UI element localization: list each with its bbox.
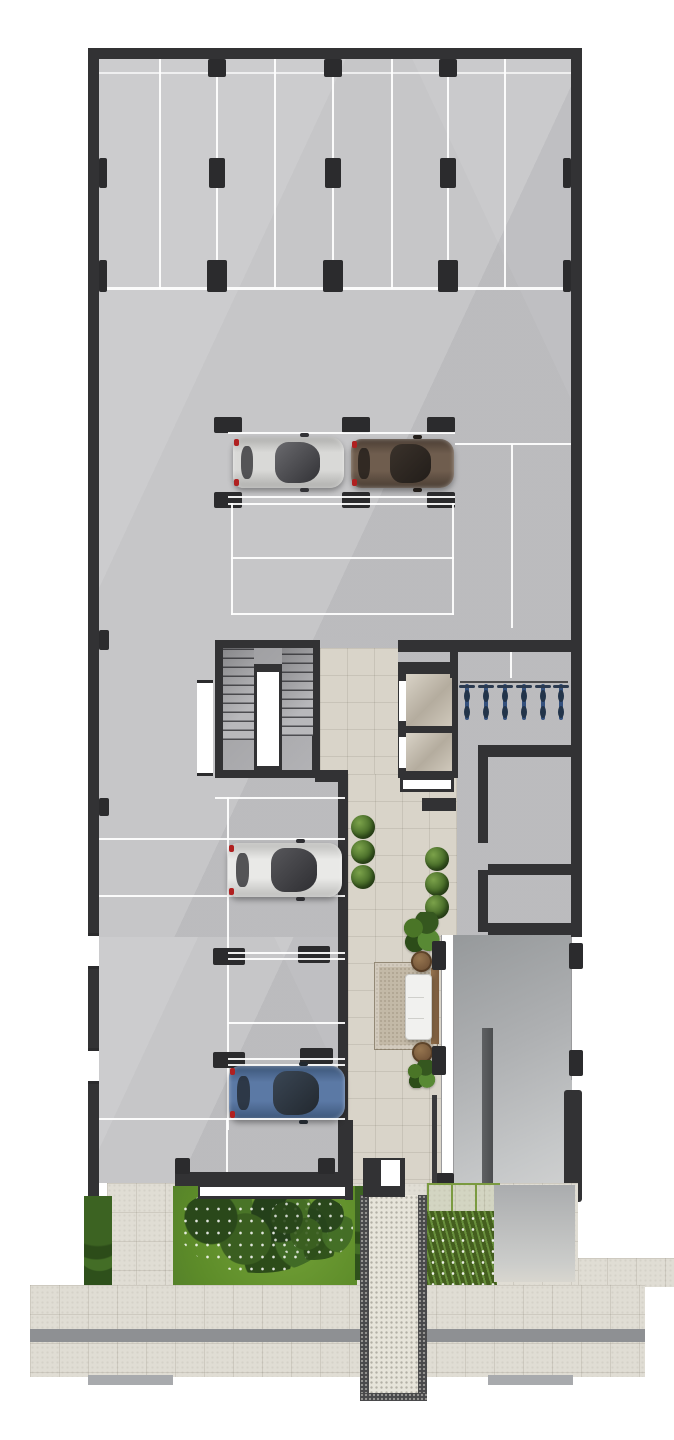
stall-line — [231, 557, 454, 559]
side-table — [411, 951, 432, 972]
walkway-border — [360, 1195, 369, 1397]
column — [439, 59, 457, 77]
stall-line — [99, 1118, 345, 1120]
bike-room-wall — [450, 652, 458, 678]
bike-room-line — [510, 652, 512, 678]
stall-line — [452, 503, 454, 615]
column — [342, 492, 370, 508]
column — [427, 492, 455, 508]
walkway-end — [360, 1393, 427, 1401]
column — [207, 260, 227, 292]
car-mirror — [300, 488, 309, 492]
storage-wall — [488, 864, 572, 875]
wall-pilaster — [99, 260, 107, 292]
stair-flight — [223, 648, 254, 740]
car-blue-hatchback — [229, 1066, 345, 1120]
driveway-ramp — [454, 935, 572, 1185]
planter-bush — [351, 840, 375, 864]
stall-line — [228, 496, 455, 498]
stair-void — [257, 672, 279, 766]
glass-wall-post — [432, 1046, 446, 1075]
entrance-pier — [318, 1158, 335, 1174]
elevator-lobby-glass — [403, 780, 451, 789]
car-taillight — [234, 479, 239, 486]
stall-line — [228, 503, 455, 505]
stall-line — [228, 1058, 345, 1060]
car-taillight — [234, 439, 239, 446]
car-mirror — [299, 1120, 308, 1124]
bicycle — [484, 684, 488, 720]
floor-plan — [0, 0, 674, 1440]
car-taillight — [352, 441, 357, 448]
bicycle — [541, 684, 545, 720]
wall-right — [571, 48, 582, 937]
column — [209, 158, 225, 188]
stall-line — [215, 797, 345, 799]
car-rear-window — [237, 1076, 250, 1111]
stall-line — [274, 59, 276, 289]
car-taillight — [230, 1068, 235, 1075]
stall-line — [228, 1022, 345, 1024]
car-taillight — [229, 845, 234, 852]
wall-pilaster — [563, 260, 571, 292]
bike-rail — [460, 681, 568, 683]
bicycle — [559, 684, 563, 720]
car-mirror — [296, 839, 305, 843]
glass-wall-post — [432, 941, 446, 970]
stall-line — [99, 838, 345, 840]
lobby-divider — [432, 1095, 437, 1185]
entrance-pier — [175, 1158, 190, 1174]
stair-flight — [282, 648, 313, 736]
walkway-path — [369, 1195, 418, 1393]
stall-line — [228, 432, 455, 434]
front-yard-pavers — [578, 1258, 674, 1287]
planter-bush — [425, 847, 449, 871]
entrance-wall — [175, 1172, 353, 1186]
stall-line — [231, 503, 233, 615]
glass-wall-post — [569, 1050, 583, 1076]
car-rear-window — [358, 448, 369, 479]
storage-wall — [478, 745, 578, 757]
car-mirror — [300, 433, 309, 437]
car-mirror — [299, 1062, 308, 1066]
stall-line — [455, 443, 571, 445]
elevator-door-1 — [399, 681, 406, 721]
car-taillight — [352, 479, 357, 486]
left-wall-vent — [88, 1048, 99, 1084]
car-taillight — [230, 1111, 235, 1118]
curb-tab — [488, 1375, 573, 1385]
column — [208, 59, 226, 77]
lobby-sofa — [405, 974, 432, 1040]
car-roof — [273, 1071, 319, 1114]
garage-floor — [99, 59, 571, 937]
car-mirror — [413, 435, 422, 439]
entrance-glass-band — [200, 1187, 351, 1196]
stall-line — [391, 59, 393, 289]
entrance-post — [345, 1120, 353, 1200]
stair-side-window — [197, 680, 213, 776]
wall-pilaster — [99, 158, 107, 188]
car-roof — [275, 442, 319, 483]
tactile-strip — [30, 1329, 645, 1342]
car-roof — [390, 444, 431, 483]
car-taillight — [229, 888, 234, 895]
wall-left — [88, 48, 99, 1196]
storage-wall — [478, 870, 488, 932]
storage-wall — [488, 923, 578, 935]
bicycle — [465, 684, 469, 720]
elevator-cab-2 — [406, 733, 452, 771]
stall-line — [511, 444, 513, 628]
column — [438, 260, 458, 292]
column — [324, 59, 342, 77]
driveway-outdoor — [494, 1185, 575, 1282]
stall-line — [228, 958, 345, 960]
planter-bush — [351, 815, 375, 839]
car-white-suv — [228, 843, 342, 897]
column — [214, 417, 242, 433]
planter-bush — [351, 865, 375, 889]
column — [440, 158, 456, 188]
column — [427, 417, 455, 433]
stall-line — [228, 952, 345, 954]
walkway-border — [418, 1195, 427, 1397]
wall-pilaster — [99, 798, 109, 816]
car-mirror — [413, 488, 422, 492]
column — [325, 158, 341, 188]
stall-line — [231, 613, 454, 615]
planter-bush — [425, 872, 449, 896]
wall-pilaster — [563, 158, 571, 188]
bicycle — [503, 684, 507, 720]
glass-wall-post — [569, 943, 583, 969]
stall-line — [226, 1118, 228, 1180]
console-table — [431, 968, 439, 1044]
wall-stub — [422, 798, 456, 811]
car-rear-window — [241, 446, 253, 479]
stall-line — [504, 59, 506, 289]
storage-wall — [478, 757, 488, 843]
core-wall — [398, 640, 572, 652]
car-rear-window — [236, 853, 249, 888]
column — [298, 946, 330, 963]
stall-line — [159, 59, 161, 289]
left-wall-vent — [88, 933, 99, 969]
car-roof — [271, 848, 317, 891]
corridor-pavers — [320, 648, 398, 774]
planter-grid — [427, 1183, 500, 1213]
elevator-cab-1 — [406, 674, 452, 726]
column — [342, 417, 370, 433]
curb-tab — [88, 1375, 173, 1385]
car-silver-hatchback — [233, 437, 344, 488]
elevator-door-2 — [399, 737, 406, 768]
hedge-row — [84, 1196, 112, 1298]
car-mirror — [296, 897, 305, 901]
wall-pilaster — [99, 630, 109, 650]
driveway-divider-wall — [482, 1028, 493, 1185]
column — [323, 260, 343, 292]
bicycle — [522, 684, 526, 720]
car-bronze-sedan — [351, 439, 454, 488]
walkway-porch-glass — [381, 1160, 400, 1186]
column — [213, 948, 245, 965]
column — [214, 492, 242, 508]
wall-top — [88, 48, 582, 59]
